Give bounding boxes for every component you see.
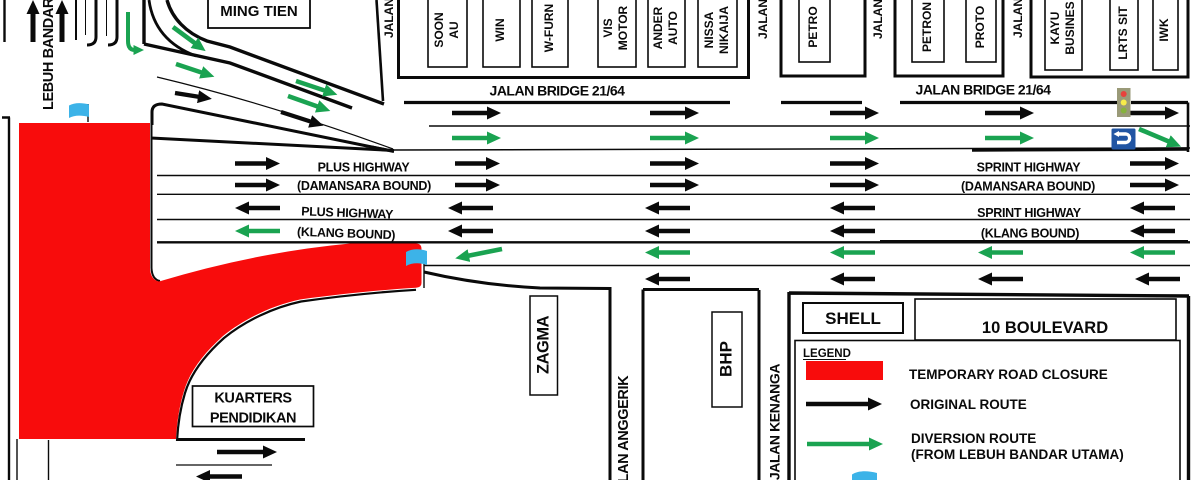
svg-text:AU: AU [447, 21, 461, 38]
svg-text:JALAN BRIDGE 21/64: JALAN BRIDGE 21/64 [490, 83, 626, 99]
svg-text:SPRINT HIGHWAY: SPRINT HIGHWAY [977, 161, 1082, 175]
svg-text:KUARTERS: KUARTERS [214, 391, 292, 407]
svg-text:IWK: IWK [1157, 18, 1171, 42]
svg-text:BHP: BHP [716, 341, 735, 377]
svg-text:NIKAIJA: NIKAIJA [717, 6, 731, 54]
svg-text:JALAN BRIDGE 21/64: JALAN BRIDGE 21/64 [916, 82, 1052, 98]
svg-text:PROTO: PROTO [973, 6, 987, 48]
svg-text:(KLANG BOUND): (KLANG BOUND) [981, 227, 1079, 241]
svg-text:10 BOULEVARD: 10 BOULEVARD [982, 319, 1108, 337]
svg-text:WIN: WIN [493, 18, 507, 41]
svg-text:BUSINES: BUSINES [1063, 1, 1077, 54]
svg-text:SOON: SOON [432, 12, 446, 47]
svg-text:JALAN ANGGERIK: JALAN ANGGERIK [616, 375, 632, 480]
svg-text:MING TIEN: MING TIEN [220, 3, 298, 20]
svg-text:ORIGINAL ROUTE: ORIGINAL ROUTE [910, 397, 1027, 412]
svg-text:AUTO: AUTO [666, 11, 680, 45]
svg-text:JALAN KENANGA: JALAN KENANGA [767, 364, 783, 480]
svg-text:SHELL: SHELL [825, 309, 881, 328]
svg-text:MOTOR: MOTOR [616, 5, 630, 50]
svg-text:TEMPORARY ROAD CLOSURE: TEMPORARY ROAD CLOSURE [909, 367, 1108, 382]
svg-text:PETRO: PETRO [806, 6, 820, 47]
svg-text:ANDER: ANDER [651, 6, 665, 49]
svg-text:PLUS HIGHWAY: PLUS HIGHWAY [318, 161, 411, 175]
svg-text:(DAMANSARA BOUND): (DAMANSARA BOUND) [961, 180, 1095, 194]
svg-text:JALAN: JALAN [1011, 0, 1025, 38]
svg-text:LEGEND: LEGEND [803, 348, 851, 360]
svg-text:ZAGMA: ZAGMA [534, 315, 552, 374]
svg-text:(DAMANSARA BOUND): (DAMANSARA BOUND) [297, 179, 431, 193]
svg-text:JALAN: JALAN [756, 0, 770, 39]
svg-text:DIVERSION ROUTE: DIVERSION ROUTE [911, 431, 1036, 446]
svg-text:PENDIDIKAN: PENDIDIKAN [210, 411, 296, 427]
svg-text:SPRINT HIGHWAY: SPRINT HIGHWAY [977, 206, 1082, 220]
svg-text:(FROM LEBUH BANDAR UTAMA): (FROM LEBUH BANDAR UTAMA) [911, 447, 1124, 462]
svg-text:PETRON: PETRON [920, 2, 934, 52]
svg-text:LEBUH BANDAR: LEBUH BANDAR [41, 0, 57, 110]
svg-text:VIS: VIS [601, 18, 615, 37]
svg-text:JALAN: JALAN [382, 0, 396, 38]
svg-text:JALAN: JALAN [871, 0, 885, 39]
svg-text:KAYU: KAYU [1048, 12, 1062, 45]
svg-text:W-FURN: W-FURN [542, 4, 556, 52]
svg-text:NISSA: NISSA [702, 11, 716, 48]
svg-text:LRTS SIT: LRTS SIT [1116, 6, 1130, 60]
